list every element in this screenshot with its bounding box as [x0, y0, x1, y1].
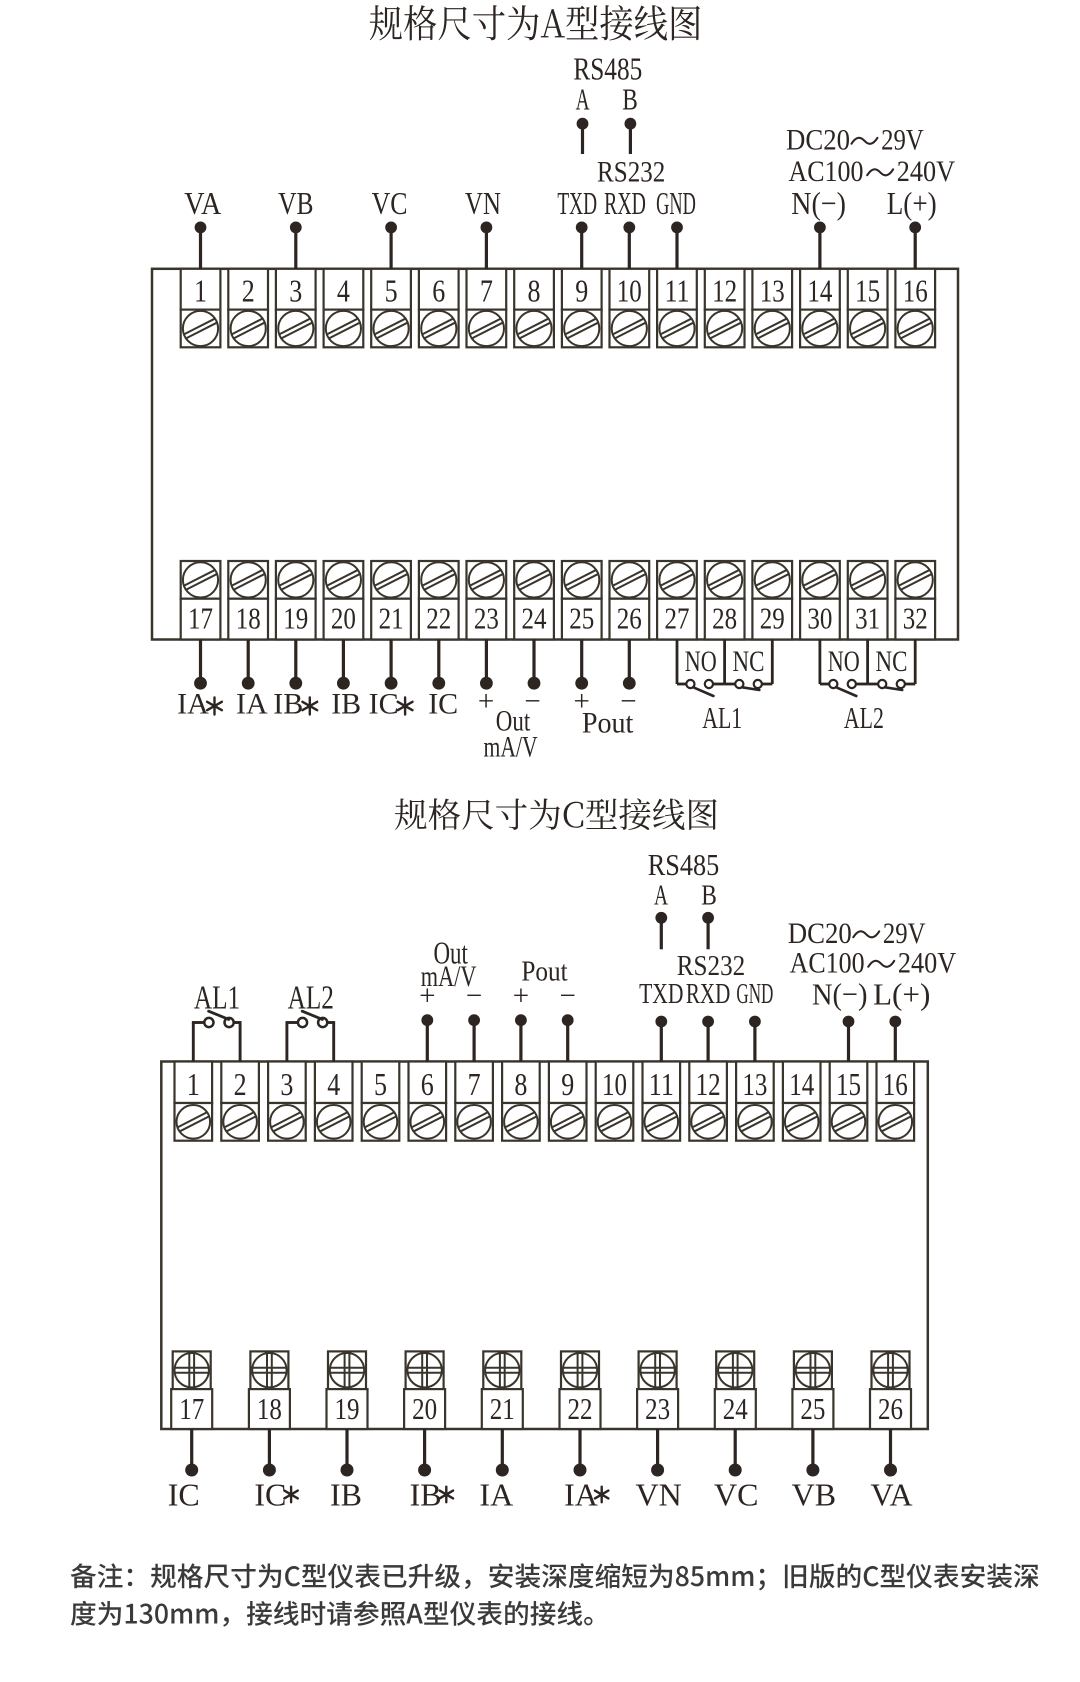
svg-text:29V: 29V	[883, 918, 926, 950]
svg-text:IA: IA	[479, 1477, 513, 1513]
svg-text:IA: IA	[564, 1477, 598, 1513]
svg-text:2: 2	[234, 1066, 247, 1102]
svg-text:L(+): L(+)	[887, 185, 937, 221]
svg-text:VA: VA	[184, 185, 221, 221]
svg-text:AL1: AL1	[702, 700, 742, 735]
svg-text:AL2: AL2	[288, 979, 334, 1016]
svg-text:18: 18	[257, 1391, 282, 1426]
svg-text:23: 23	[645, 1391, 670, 1426]
svg-text:+: +	[478, 686, 494, 718]
svg-text:mA/V: mA/V	[421, 960, 477, 993]
svg-text:7: 7	[468, 1066, 481, 1102]
svg-text:AL1: AL1	[194, 979, 240, 1016]
svg-text:8: 8	[514, 1066, 527, 1102]
svg-text:14: 14	[807, 273, 832, 309]
svg-text:16: 16	[883, 1066, 908, 1102]
svg-text:IA: IA	[236, 688, 268, 721]
svg-text:DC20: DC20	[786, 125, 850, 157]
svg-text:25: 25	[800, 1391, 825, 1426]
svg-text:10: 10	[602, 1066, 627, 1102]
svg-text:IB: IB	[331, 688, 361, 721]
svg-text:24: 24	[723, 1391, 748, 1426]
svg-text:20: 20	[331, 601, 356, 636]
svg-text:L(+): L(+)	[873, 977, 930, 1012]
svg-text:29: 29	[760, 601, 785, 636]
svg-text:27: 27	[665, 601, 690, 636]
svg-text:13: 13	[760, 273, 785, 309]
svg-text:A: A	[576, 82, 590, 117]
svg-text:14: 14	[789, 1066, 814, 1102]
svg-text:17: 17	[188, 601, 213, 636]
svg-text:VB: VB	[278, 185, 313, 221]
svg-text:RXD: RXD	[686, 979, 730, 1010]
svg-text:N(−): N(−)	[812, 977, 868, 1012]
svg-text:21: 21	[379, 601, 404, 636]
svg-text:9: 9	[561, 1066, 574, 1102]
svg-text:NC: NC	[733, 646, 765, 678]
svg-text:7: 7	[480, 273, 493, 309]
svg-text:5: 5	[374, 1066, 387, 1102]
svg-text:VN: VN	[465, 185, 501, 221]
svg-text:VA: VA	[870, 1477, 912, 1513]
svg-text:21: 21	[490, 1391, 515, 1426]
svg-text:12: 12	[696, 1066, 721, 1102]
svg-text:N(−): N(−)	[791, 185, 846, 221]
svg-text:32: 32	[903, 601, 928, 636]
svg-text:28: 28	[712, 601, 737, 636]
svg-text:22: 22	[426, 601, 451, 636]
svg-text:RS232: RS232	[677, 951, 746, 982]
svg-text:B: B	[701, 880, 717, 912]
svg-text:GND: GND	[736, 979, 773, 1010]
svg-text:Pout: Pout	[582, 707, 634, 740]
svg-text:31: 31	[855, 601, 880, 636]
svg-text:23: 23	[474, 601, 499, 636]
svg-text:IC: IC	[369, 688, 399, 721]
svg-text:29V: 29V	[881, 125, 924, 157]
svg-text:240V: 240V	[898, 948, 956, 980]
svg-text:10: 10	[617, 273, 642, 309]
svg-text:Pout: Pout	[521, 957, 567, 988]
svg-text:GND: GND	[656, 185, 696, 221]
svg-text:IC: IC	[168, 1477, 200, 1513]
svg-text:VC: VC	[372, 185, 408, 221]
svg-text:1: 1	[194, 273, 207, 309]
svg-text:1: 1	[187, 1066, 200, 1102]
svg-text:22: 22	[568, 1391, 593, 1426]
svg-text:11: 11	[649, 1066, 674, 1102]
svg-text:VB: VB	[792, 1477, 836, 1513]
svg-text:NC: NC	[876, 646, 908, 678]
svg-text:IC: IC	[428, 688, 458, 721]
svg-text:26: 26	[617, 601, 642, 636]
svg-text:NO: NO	[685, 646, 717, 678]
svg-text:VC: VC	[714, 1477, 758, 1513]
svg-text:6: 6	[421, 1066, 434, 1102]
svg-text:20: 20	[412, 1391, 437, 1426]
svg-text:3: 3	[280, 1066, 293, 1102]
svg-text:16: 16	[903, 273, 928, 309]
svg-text:240V: 240V	[897, 156, 955, 188]
svg-text:TXD: TXD	[557, 185, 597, 221]
svg-text:17: 17	[179, 1391, 204, 1426]
svg-text:B: B	[622, 82, 638, 117]
svg-text:15: 15	[836, 1066, 861, 1102]
svg-text:DC20: DC20	[788, 918, 852, 950]
svg-text:12: 12	[712, 273, 737, 309]
svg-text:IB: IB	[330, 1477, 362, 1513]
svg-text:RXD: RXD	[604, 185, 646, 221]
svg-text:mA/V: mA/V	[484, 731, 538, 764]
svg-text:2: 2	[242, 273, 255, 309]
svg-text:RS485: RS485	[648, 847, 720, 882]
svg-text:24: 24	[522, 601, 547, 636]
svg-text:18: 18	[236, 601, 261, 636]
svg-text:IB: IB	[410, 1477, 442, 1513]
svg-text:IC: IC	[254, 1477, 286, 1513]
svg-text:A: A	[654, 880, 668, 912]
svg-text:3: 3	[289, 273, 302, 309]
svg-text:IA: IA	[177, 688, 209, 721]
svg-text:AC100: AC100	[789, 156, 864, 188]
svg-text:19: 19	[335, 1391, 360, 1426]
svg-text:30: 30	[807, 601, 832, 636]
svg-text:VN: VN	[635, 1477, 681, 1513]
svg-text:15: 15	[855, 273, 880, 309]
svg-text:TXD: TXD	[639, 979, 683, 1010]
svg-text:NO: NO	[828, 646, 860, 678]
svg-text:9: 9	[575, 273, 588, 309]
svg-text:19: 19	[283, 601, 308, 636]
svg-text:AC100: AC100	[790, 948, 865, 980]
svg-text:IB: IB	[273, 688, 303, 721]
svg-text:11: 11	[665, 273, 690, 309]
svg-text:RS232: RS232	[597, 156, 665, 189]
svg-text:5: 5	[385, 273, 398, 309]
svg-text:4: 4	[327, 1066, 340, 1102]
svg-text:4: 4	[337, 273, 350, 309]
svg-text:25: 25	[569, 601, 594, 636]
svg-text:6: 6	[432, 273, 445, 309]
svg-text:8: 8	[528, 273, 541, 309]
svg-text:13: 13	[742, 1066, 767, 1102]
svg-text:26: 26	[878, 1391, 903, 1426]
svg-text:AL2: AL2	[844, 700, 884, 735]
